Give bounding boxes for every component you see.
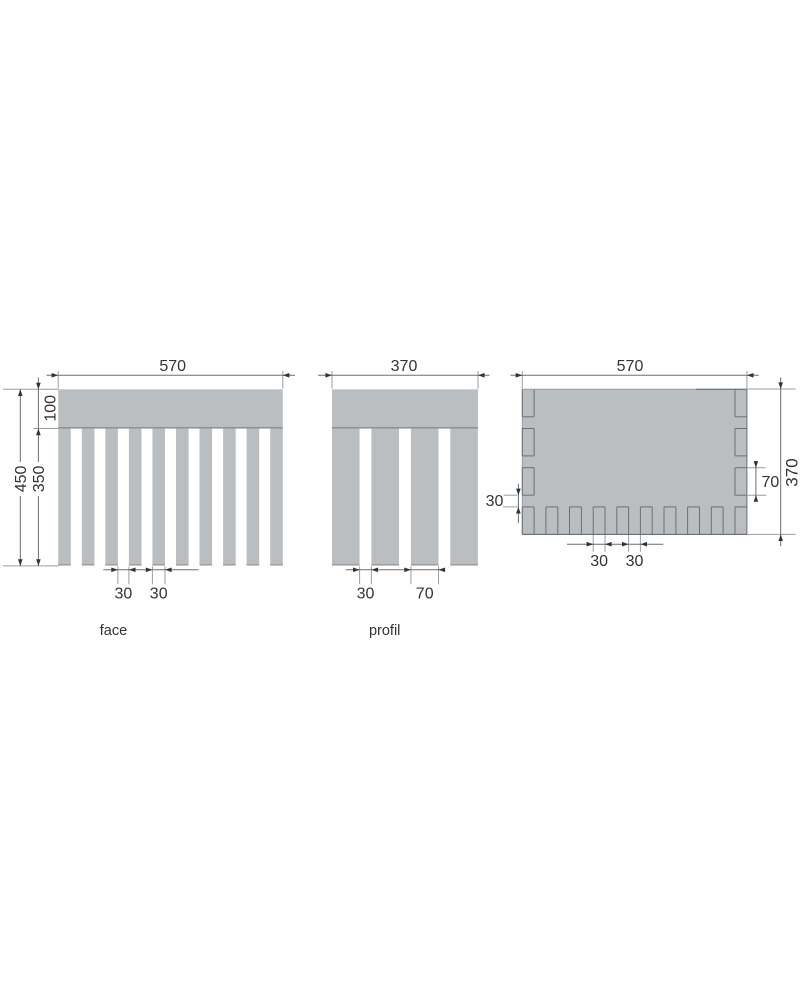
svg-text:30: 30 [150, 585, 168, 602]
svg-text:profil: profil [369, 623, 400, 639]
svg-text:70: 70 [762, 474, 780, 491]
svg-text:30: 30 [357, 585, 375, 602]
svg-text:70: 70 [416, 585, 434, 602]
svg-text:570: 570 [159, 358, 186, 375]
svg-text:450: 450 [13, 465, 30, 492]
svg-text:100: 100 [42, 395, 59, 422]
svg-text:30: 30 [626, 553, 644, 570]
svg-text:350: 350 [31, 465, 48, 492]
svg-text:30: 30 [115, 585, 133, 602]
svg-text:370: 370 [783, 458, 800, 486]
svg-text:30: 30 [486, 493, 504, 510]
svg-text:370: 370 [391, 358, 418, 375]
svg-text:face: face [100, 623, 127, 639]
svg-text:30: 30 [590, 553, 608, 570]
svg-text:570: 570 [617, 358, 644, 375]
